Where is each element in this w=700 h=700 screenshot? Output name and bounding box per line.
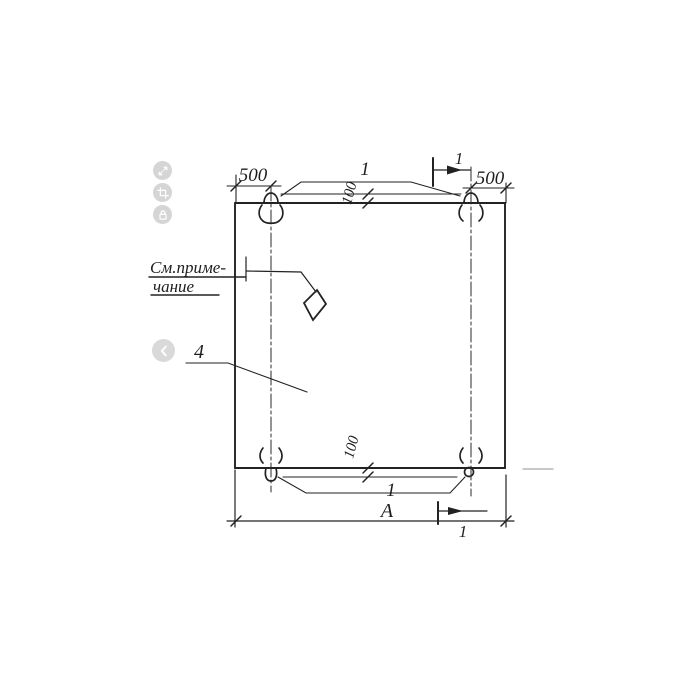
image-viewer: 500 500 100 100 1 1 1 1 А 4 См.приме- ча…: [0, 0, 700, 700]
dim-500-left-label: 500: [239, 165, 268, 186]
part-4-label: 4: [194, 341, 204, 363]
loop-centerlines: [271, 167, 471, 496]
note-line1: См.приме-: [150, 258, 226, 277]
panel-outline: [235, 203, 505, 468]
callout-leader-bottom: [278, 477, 465, 493]
callout-top-label: 1: [360, 159, 370, 180]
dim-width-label: А: [379, 500, 394, 522]
embed-lines: [281, 194, 461, 477]
diamond-symbol: [304, 290, 326, 320]
part-4-leader: [186, 363, 307, 392]
dim-100-bottom-label: 100: [341, 434, 362, 460]
note-line2: чание: [153, 277, 195, 296]
technical-drawing: 500 500 100 100 1 1 1 1 А 4 См.приме- ча…: [0, 0, 700, 700]
section-bottom-label: 1: [459, 522, 468, 541]
callout-bottom-label: 1: [386, 480, 396, 501]
section-top-label: 1: [455, 149, 464, 168]
dim-100-bottom: [363, 463, 373, 482]
dim-100-top: [363, 189, 373, 208]
dim-500-right-label: 500: [476, 168, 505, 189]
section-mark-top: [433, 158, 470, 186]
